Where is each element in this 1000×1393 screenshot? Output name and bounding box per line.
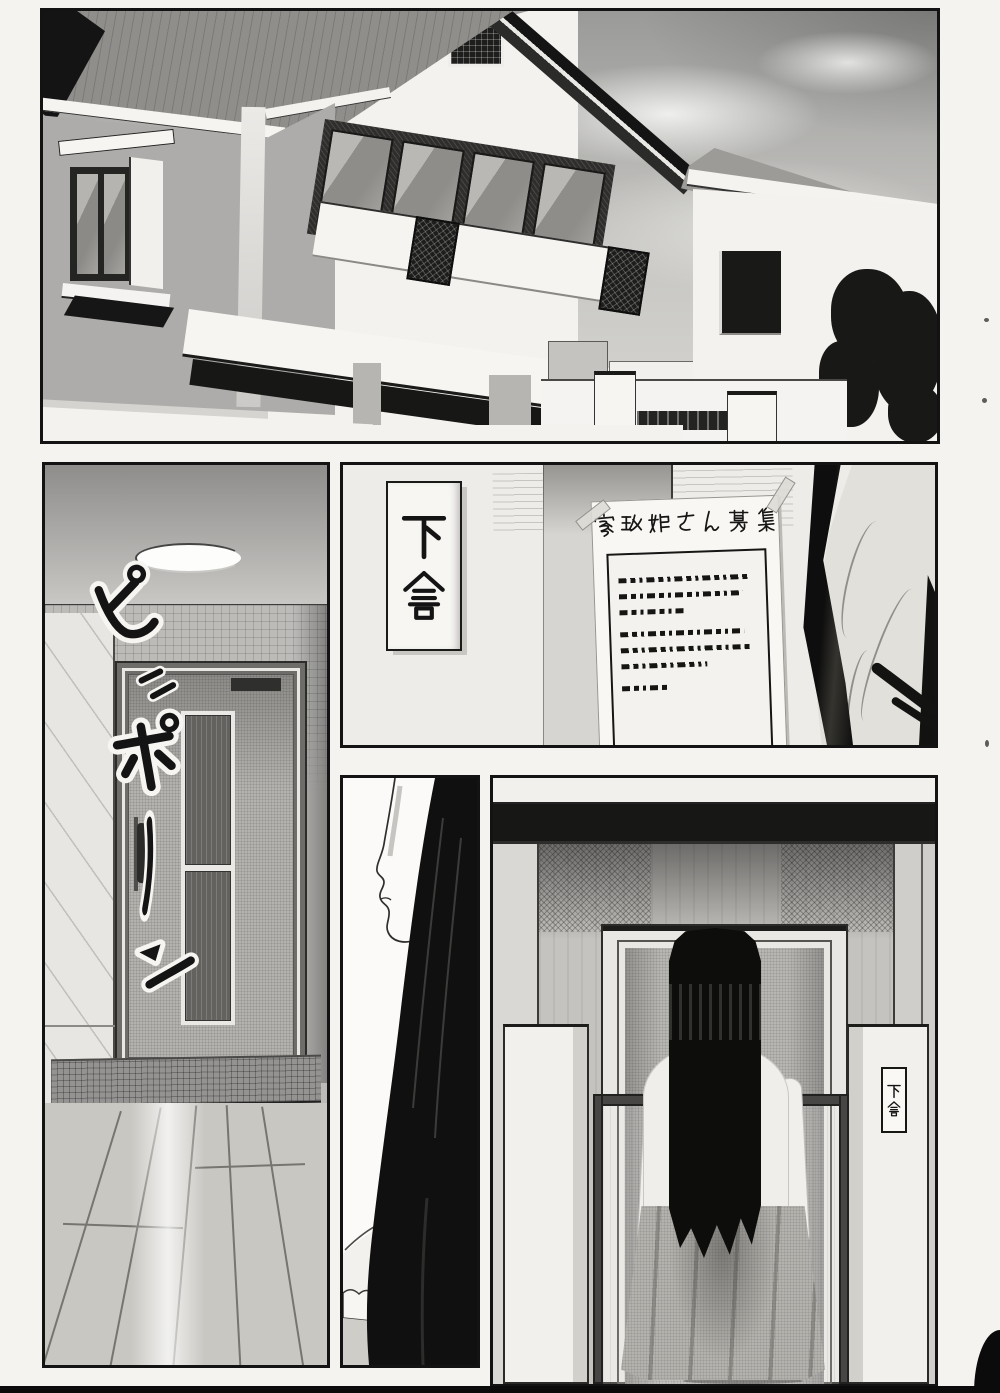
panel-profile-closeup (340, 775, 480, 1368)
gate-stile (593, 1094, 603, 1384)
manga-page: ピンポーン (0, 0, 1000, 1393)
panel-house-exterior (40, 8, 940, 444)
poster-text-line (621, 644, 752, 654)
sfx-glyph-po (101, 711, 191, 801)
house-nameplate: 下倉 (386, 481, 462, 651)
genkan-tile-step (51, 1055, 321, 1108)
ground-strip (343, 425, 683, 444)
cabinet-seam (45, 1025, 115, 1027)
sfx-glyph-n (127, 660, 189, 710)
gate-post-left (503, 1024, 589, 1384)
poster-text-line (620, 628, 744, 637)
sfx-glyph-dash (124, 816, 171, 916)
profile-artwork (343, 778, 477, 1365)
hair-highlight (669, 984, 761, 1040)
door-closer (231, 678, 281, 691)
long-black-hair (669, 928, 761, 1258)
panel-nameplate-poster: 下倉 家政婦さん募集 (340, 462, 938, 748)
kanji-sei-glyph (619, 510, 644, 539)
bay-window-frame (70, 167, 130, 281)
poster-text-line (622, 685, 670, 692)
scan-speck (985, 740, 989, 747)
kanji-shita-glyph (398, 510, 450, 562)
poster-title (592, 505, 779, 540)
gate-post-right: 下倉 (847, 1024, 929, 1384)
gate-nameplate: 下倉 (881, 1067, 907, 1133)
panel-entryway: ピンポーン (42, 462, 330, 1368)
door-window-pane (185, 715, 231, 865)
poster-text-box (606, 548, 773, 748)
kana-n-glyph (699, 506, 726, 537)
window-pane (77, 174, 98, 274)
gate-post (727, 391, 777, 444)
scan-speck (982, 398, 987, 403)
dark-window (719, 251, 781, 335)
bay-side-panel (129, 157, 163, 289)
bay-window (65, 143, 169, 349)
floor-light-streak (131, 1103, 205, 1365)
recruitment-poster: 家政婦さん募集 (591, 495, 788, 748)
panel-front-gate: 下倉 (490, 775, 938, 1387)
ceiling-light (135, 543, 243, 573)
woman-shoulder (791, 465, 935, 745)
page-trim-bar (0, 1386, 1000, 1393)
kanji-kura-glyph (886, 1101, 902, 1117)
scan-speck (984, 318, 989, 322)
gate-stile (839, 1094, 849, 1384)
entrance-overhang-beam (493, 804, 935, 844)
window-pane (104, 174, 125, 274)
kana-sa-glyph (673, 508, 698, 537)
sfx-glyph-n-final (119, 935, 207, 997)
kanji-shita-glyph (886, 1083, 902, 1099)
tree (888, 383, 940, 443)
poster-text-line (621, 661, 707, 669)
scan-corner-mark (974, 1330, 1000, 1393)
poster-text-line (619, 608, 685, 615)
poster-text-line (619, 590, 743, 599)
poster-text-line (618, 574, 749, 584)
kanji-fu-glyph (645, 508, 672, 539)
entrance-fascia (493, 778, 935, 804)
kanji-bo-glyph (727, 506, 752, 535)
kanji-kura-glyph (398, 570, 450, 622)
